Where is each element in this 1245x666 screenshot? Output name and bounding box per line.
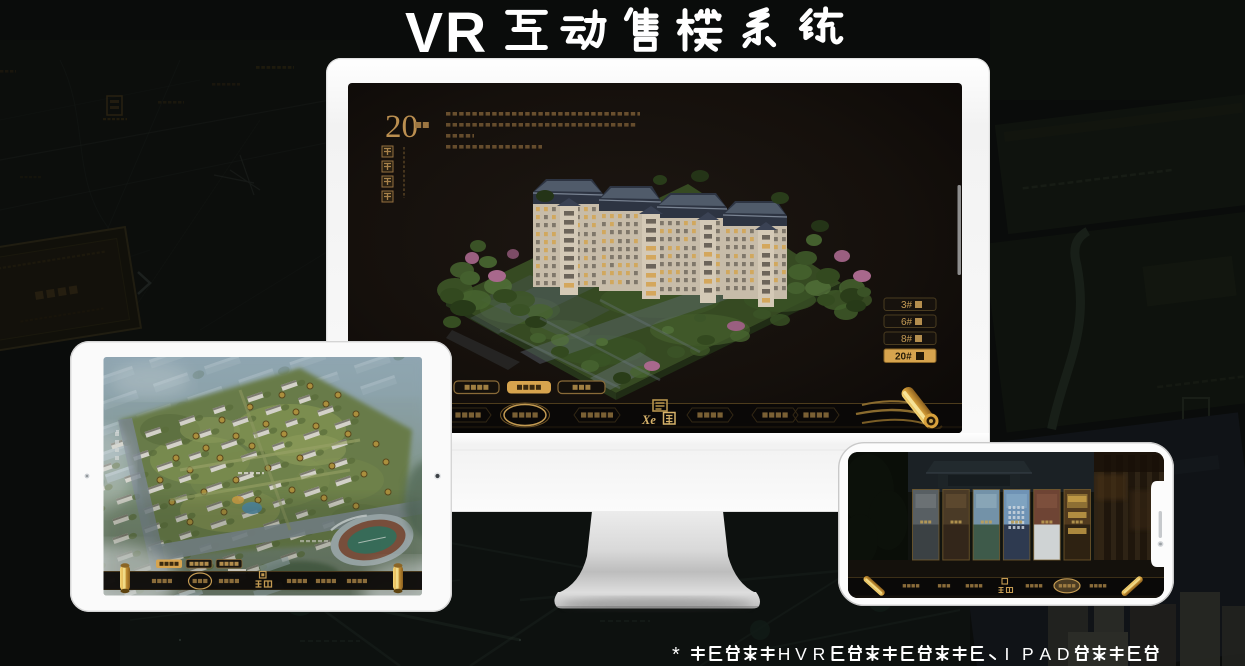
svg-text:8#: 8# bbox=[901, 334, 913, 345]
svg-text:H: H bbox=[778, 644, 791, 664]
svg-text:*: * bbox=[672, 644, 680, 666]
svg-text:20#: 20# bbox=[895, 352, 912, 363]
svg-text:3#: 3# bbox=[901, 300, 913, 311]
svg-text:I: I bbox=[1005, 644, 1010, 664]
svg-text:20: 20 bbox=[385, 109, 418, 145]
svg-text:D: D bbox=[1057, 644, 1070, 664]
svg-text:6#: 6# bbox=[901, 317, 913, 328]
svg-text:R: R bbox=[813, 644, 826, 664]
svg-text:Xe: Xe bbox=[641, 413, 656, 427]
svg-text:V: V bbox=[795, 644, 807, 664]
svg-text:A: A bbox=[1039, 644, 1051, 664]
svg-text:P: P bbox=[1022, 644, 1034, 664]
